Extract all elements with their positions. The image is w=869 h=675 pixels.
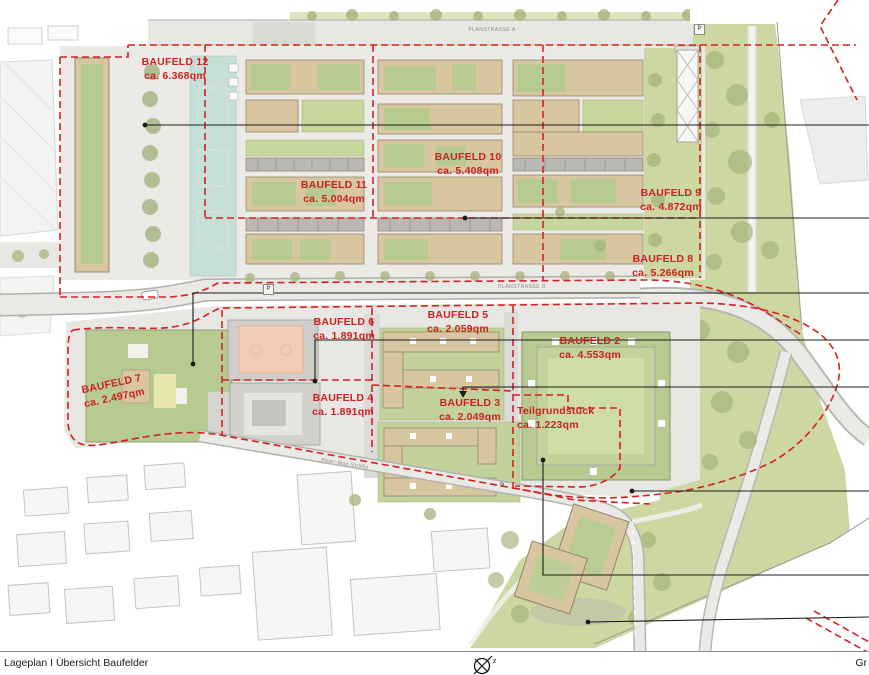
baufeld6-building [228, 320, 318, 380]
baufeld-area: ca. 1.891qm [312, 405, 374, 419]
teilgrundstueck-label: Teilgrundstück ca. 1.223qm [517, 404, 594, 432]
baufeld-area: ca. 4.553qm [559, 348, 621, 362]
baufeld-area: ca. 1.223qm [517, 418, 594, 432]
sheet-text-cut: Gr [855, 657, 867, 669]
baufeld-9-label: BAUFELD 9 ca. 4.872qm [640, 186, 702, 214]
baufeld-12-label: BAUFELD 12 ca. 6.368qm [142, 55, 209, 83]
bridge-structure [675, 46, 700, 142]
baufeld-name: BAUFELD 5 [427, 308, 489, 322]
canal [190, 56, 238, 276]
baufeld-area: ca. 5.266qm [632, 266, 694, 280]
svg-text:z: z [492, 656, 497, 665]
baufeld4-building [230, 383, 320, 445]
baufeld-name: BAUFELD 12 [142, 55, 209, 69]
baufeld-name: BAUFELD 11 [301, 178, 367, 192]
baufeld-3-label: BAUFELD 3 ca. 2.049qm [439, 396, 501, 424]
baufeld-name: BAUFELD 8 [632, 252, 694, 266]
baufeld-4-label: BAUFELD 4 ca. 1.891qm [312, 391, 374, 419]
baufeld-6-label: BAUFELD 6 ca. 1.891qm [313, 315, 375, 343]
north-arrow-icon: z [468, 654, 502, 675]
baufeld-area: ca. 2.059qm [427, 322, 489, 336]
baufeld-name: BAUFELD 9 [640, 186, 702, 200]
baufeld-2-label: BAUFELD 2 ca. 4.553qm [559, 334, 621, 362]
baufeld-area: ca. 5.408qm [435, 164, 502, 178]
baufeld-name: BAUFELD 3 [439, 396, 501, 410]
parking-icon: P [263, 284, 274, 295]
baufeld-10-label: BAUFELD 10 ca. 5.408qm [435, 150, 502, 178]
baufeld-11-label: BAUFELD 11 ca. 5.004qm [301, 178, 367, 206]
baufeld-name: BAUFELD 6 [313, 315, 375, 329]
car [142, 290, 159, 300]
site-plan-canvas: BAUFELD 12 ca. 6.368qm BAUFELD 11 ca. 5.… [0, 0, 869, 675]
baufeld-name: BAUFELD 10 [435, 150, 502, 164]
baufeld-name: Teilgrundstück [517, 404, 594, 418]
baufeld-area: ca. 2.049qm [439, 410, 501, 424]
baufeld-area: ca. 5.004qm [301, 192, 367, 206]
baufeld-name: BAUFELD 2 [559, 334, 621, 348]
planstrasse-b-label: PLANSTRASSE B [498, 284, 546, 290]
planstrasse-a-label: PLANSTRASSE A [468, 27, 515, 33]
baufeld-area: ca. 6.368qm [142, 69, 209, 83]
baufeld-area: ca. 4.872qm [640, 200, 702, 214]
parking-icon: P [694, 24, 705, 35]
parking-icon: P [500, 483, 507, 489]
baufeld-5-label: BAUFELD 5 ca. 2.059qm [427, 308, 489, 336]
drawing-title: Lageplan I Übersicht Baufelder [4, 657, 148, 669]
title-block: Lageplan I Übersicht Baufelder z Gr [0, 651, 869, 675]
baufeld-area: ca. 1.891qm [313, 329, 375, 343]
baufeld-8-label: BAUFELD 8 ca. 5.266qm [632, 252, 694, 280]
baufeld-name: BAUFELD 4 [312, 391, 374, 405]
